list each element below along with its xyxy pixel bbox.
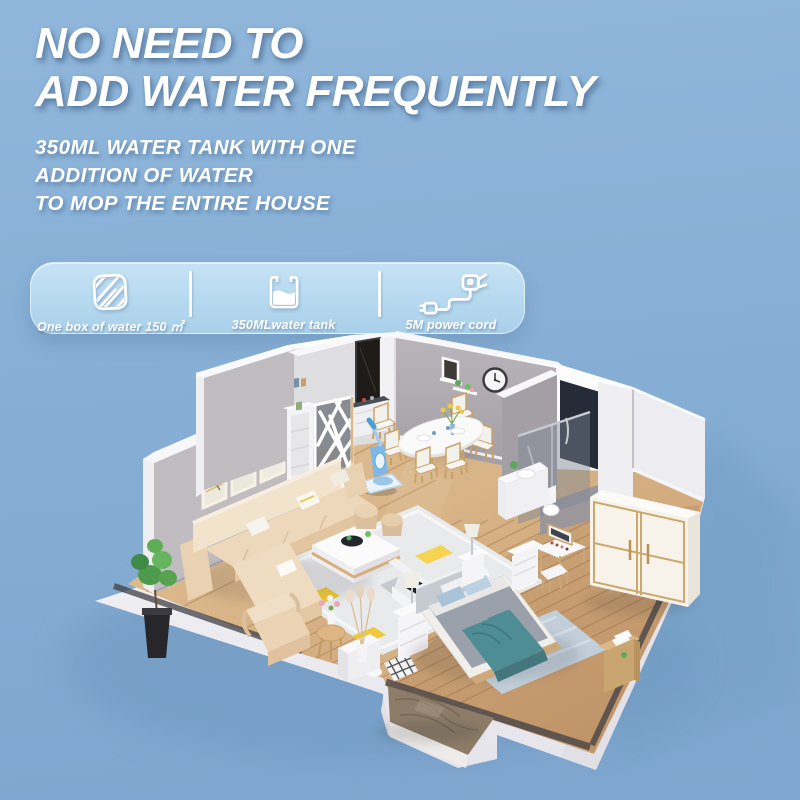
table-centerpiece [417,404,465,442]
dining-area [372,393,494,483]
wood-floor [0,436,800,780]
subheading-line-3: TO MOP THE ENTIRE HOUSE [35,192,330,215]
feature-tank-capacity: 350MLwater tank [189,263,378,333]
subheading-line-1: 350ML WATER TANK WITH ONE [35,136,356,159]
bed [416,565,562,684]
balcony-step [366,653,494,768]
ceiling-light-glow [204,432,277,483]
wall-art [203,430,284,508]
subheading-line-2: ADDITION OF WATER [35,164,253,187]
bed-pillows [436,567,514,628]
wall-shelves [453,380,477,394]
wardrobe [585,490,700,615]
coffee-table [312,525,400,583]
bathroom-vanity [498,461,548,520]
armchair [244,592,310,666]
floor-edge-trim [114,566,676,747]
side-table [317,595,345,660]
living-room-wall [143,394,306,594]
floor-plant [131,539,177,658]
shower-enclosure [518,412,590,524]
sofa [180,459,375,640]
feature-label: One box of water 150 ㎡ [37,316,183,335]
dining-table [395,404,486,471]
kitchen [288,332,396,454]
sofa-pillows [246,469,350,577]
toilet [543,485,559,516]
kitchen-window [356,338,380,408]
hero-text-block: NO NEED TO ADD WATER FREQUENTLY 350ML WA… [35,20,595,218]
dining-wall [396,331,564,476]
area-rug [255,505,545,655]
right-wall [629,386,709,498]
platform-slab [95,333,705,770]
main-heading: NO NEED TO ADD WATER FREQUENTLY [35,20,595,116]
sub-heading: 350ML WATER TANK WITH ONE ADDITION OF WA… [35,134,595,218]
water-tank-icon [263,270,305,316]
kitchen-counter [350,396,390,438]
pouf-stools [354,504,403,536]
feature-water-coverage: One box of water 150 ㎡ [31,263,189,333]
media-console [388,558,460,642]
feature-label: 5M power cord [406,318,497,332]
plaid-cushion [366,653,418,681]
feature-label: 350MLwater tank [232,318,336,332]
lattice-divider [300,397,352,512]
ground-shadow [65,425,800,772]
bed-blanket [462,610,548,682]
wall-clock [484,369,507,392]
bathroom [496,370,633,535]
display-cabinet [283,378,317,508]
hall-chest-lamp [392,572,434,661]
back-wall-block [196,345,296,497]
wood-bench [598,630,640,693]
power-cord-icon [411,270,491,316]
living-room [131,378,545,682]
nightstand [457,524,489,587]
vanity-dresser [507,524,586,592]
mop-pad-icon [88,270,132,314]
vanity-stool [540,564,568,592]
bedroom [388,490,700,694]
steam-mop [328,420,402,496]
feature-bar: One box of water 150 ㎡ 350MLwater tank 5… [30,262,525,334]
heading-line-1: NO NEED TO [35,19,303,68]
feature-cord-length: 5M power cord [378,263,524,333]
wall-frame [440,358,462,384]
half-wall-stub [338,584,380,682]
heading-line-2: ADD WATER FREQUENTLY [35,67,595,116]
